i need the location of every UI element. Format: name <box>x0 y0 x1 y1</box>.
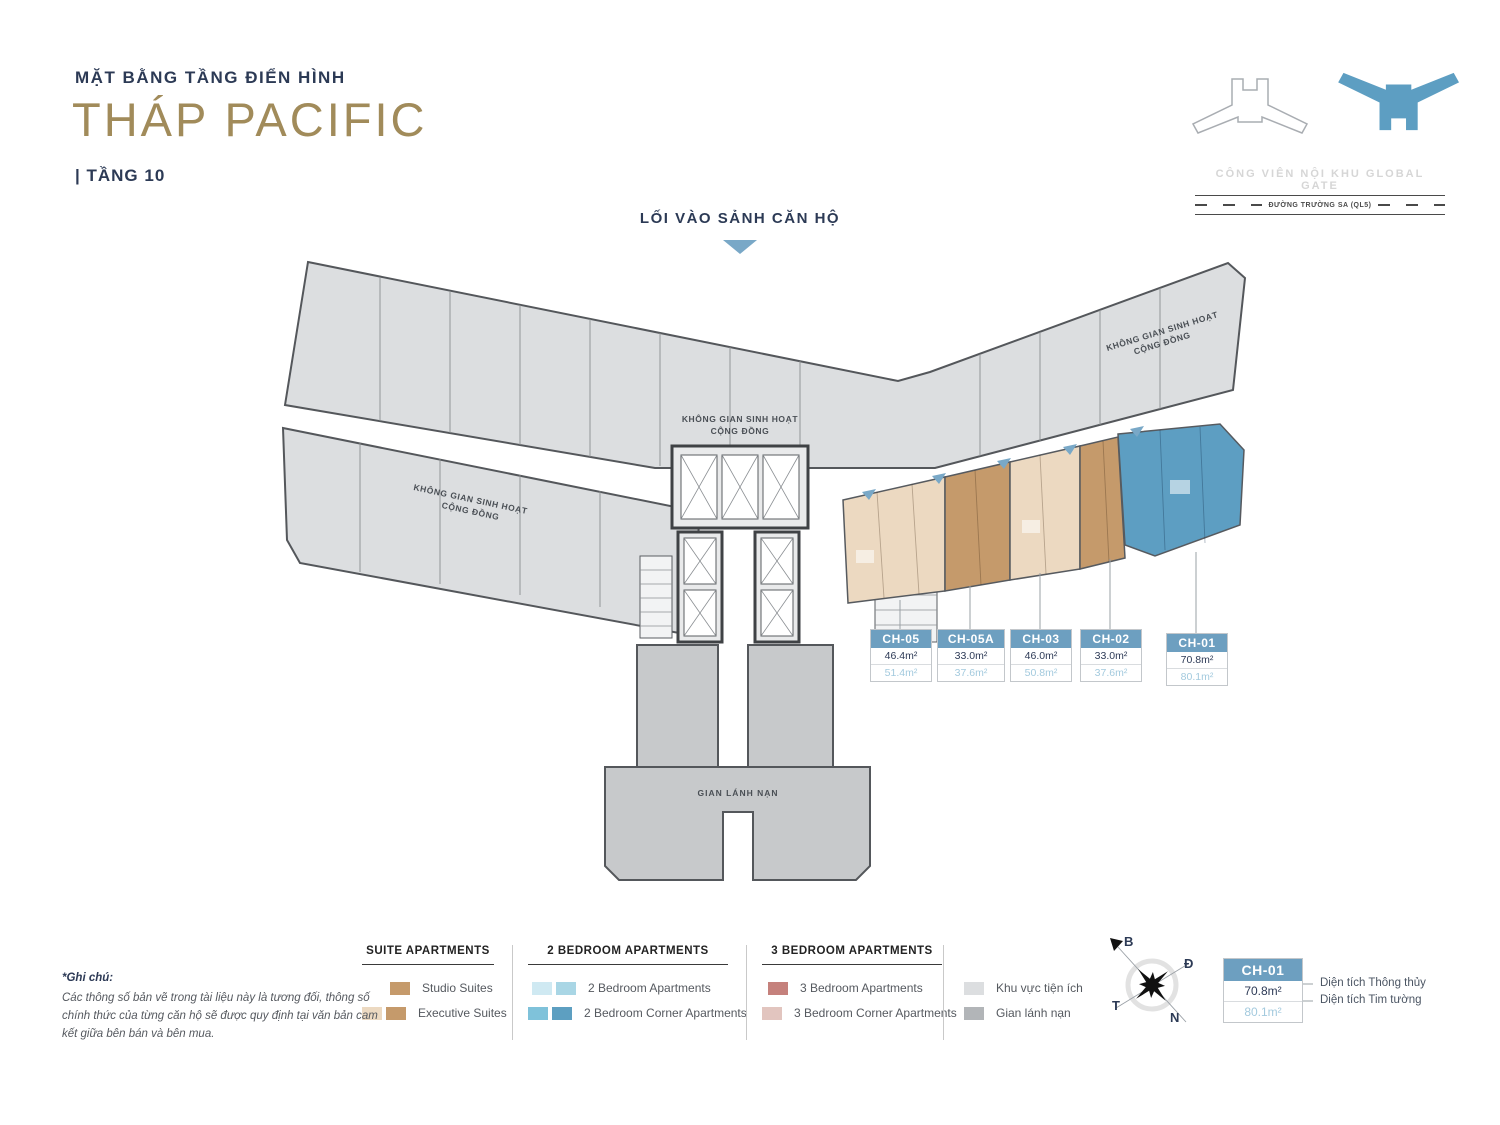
legend-swatch <box>556 982 576 995</box>
legend-divider <box>512 945 513 1040</box>
unit-ch-02-shape <box>1080 437 1125 569</box>
legend-3br-apartments: 3 BEDROOM APARTMENTS 3 Bedroom Apartment… <box>762 945 942 1029</box>
legend-swatch <box>528 1007 548 1020</box>
legend-item-label: 2 Bedroom Corner Apartments <box>584 1006 747 1020</box>
legend-swatch <box>552 1007 572 1020</box>
unit-tag-ch-05a: CH-05A 33.0m² 37.6m² <box>937 629 1005 682</box>
footnote: *Ghi chú: Các thông số bản vẽ trong tài … <box>62 972 382 1043</box>
legend-group-title: SUITE APARTMENTS <box>362 945 494 965</box>
footnote-body: Các thông số bản vẽ trong tài liệu này l… <box>62 990 382 1043</box>
legend-item: 2 Bedroom Corner Apartments <box>528 1004 728 1022</box>
unit-tag-ch-01: CH-01 70.8m² 80.1m² <box>1166 633 1228 686</box>
community-label-center-2: CỘNG ĐỒNG <box>711 425 770 436</box>
legend-group-title: 2 BEDROOM APARTMENTS <box>528 945 728 965</box>
unit-gross-area: 80.1m² <box>1224 1002 1302 1022</box>
legend-item-label: Studio Suites <box>422 981 493 995</box>
unit-id: CH-05 <box>871 630 931 648</box>
unit-id: CH-02 <box>1081 630 1141 648</box>
legend-item: Khu vực tiện ích <box>958 979 1098 997</box>
legend-swatch <box>532 982 552 995</box>
compass-south-label: N <box>1170 1010 1179 1025</box>
compass-east-label: Đ <box>1184 956 1193 971</box>
road-strip: ĐƯỜNG TRƯỜNG SA (QL5) <box>1195 195 1445 215</box>
page-title: THÁP PACIFIC <box>72 92 427 147</box>
unit-tag-ch-03: CH-03 46.0m² 50.8m² <box>1010 629 1072 682</box>
compass-north-label: B <box>1124 934 1133 949</box>
unit-gross-area: 37.6m² <box>1081 665 1141 681</box>
community-label-center-1: KHÔNG GIAN SINH HOẠT <box>682 413 799 424</box>
unit-gross-area: 51.4m² <box>871 665 931 681</box>
unit-ch-05-shape <box>843 477 945 603</box>
legend-item-label: Khu vực tiện ích <box>996 981 1083 995</box>
upper-wings-shape <box>285 262 1245 468</box>
site-locator <box>1185 50 1465 170</box>
park-label: CÔNG VIÊN NỘI KHU GLOBAL GATE <box>1195 168 1445 192</box>
legend-divider <box>943 945 944 1040</box>
legend-divider <box>746 945 747 1040</box>
unit-id: CH-01 <box>1167 634 1227 652</box>
unit-net-area: 46.4m² <box>871 648 931 665</box>
legend-item-label: 2 Bedroom Apartments <box>588 981 711 995</box>
unit-net-area: 33.0m² <box>938 648 1004 665</box>
net-area-definition: Diện tích Thông thủy <box>1320 977 1426 989</box>
unit-tag-ch-02: CH-02 33.0m² 37.6m² <box>1080 629 1142 682</box>
legend-group-title: 3 BEDROOM APARTMENTS <box>762 945 942 965</box>
unit-id: CH-05A <box>938 630 1004 648</box>
gross-area-definition: Diện tích Tim tường <box>1320 994 1422 1006</box>
road-centerline <box>1195 204 1262 206</box>
unit-net-area: 70.8m² <box>1224 981 1302 1002</box>
unit-id: CH-03 <box>1011 630 1071 648</box>
road-centerline <box>1378 204 1445 206</box>
unit-id: CH-01 <box>1224 959 1302 981</box>
legend-item: 3 Bedroom Apartments <box>762 979 942 997</box>
page-subtitle: MẶT BẰNG TẦNG ĐIỂN HÌNH <box>75 68 346 88</box>
legend-swatch <box>390 982 410 995</box>
legend-item-label: 3 Bedroom Corner Apartments <box>794 1006 957 1020</box>
legend-item: 2 Bedroom Apartments <box>528 979 728 997</box>
refuge-block-shape <box>605 767 870 880</box>
legend-swatch <box>386 1007 406 1020</box>
tower-outline-icon <box>1193 79 1307 133</box>
legend-extras: Khu vực tiện ích Gian lánh nạn <box>958 945 1098 1029</box>
sample-unit-tag: CH-01 70.8m² 80.1m² <box>1223 958 1303 1023</box>
legend-item: Gian lánh nạn <box>958 1004 1098 1022</box>
elevator-cores <box>678 532 799 642</box>
compass-west-label: T <box>1112 998 1120 1013</box>
brochure-page: { "header": { "subtitle": "MẶT BẰNG TẦNG… <box>0 0 1500 1125</box>
legend-2br-apartments: 2 BEDROOM APARTMENTS 2 Bedroom Apartment… <box>528 945 728 1029</box>
legend-swatch <box>964 982 984 995</box>
unit-tag-ch-05: CH-05 46.4m² 51.4m² <box>870 629 932 682</box>
legend-item-label: 3 Bedroom Apartments <box>800 981 923 995</box>
unit-net-area: 70.8m² <box>1167 652 1227 669</box>
legend-swatch <box>768 982 788 995</box>
unit-gross-area: 50.8m² <box>1011 665 1071 681</box>
stem-right-shape <box>748 645 833 767</box>
footnote-title: *Ghi chú: <box>62 972 382 984</box>
unit-net-area: 33.0m² <box>1081 648 1141 665</box>
tower-pacific-icon <box>1338 73 1459 130</box>
unit-gross-area: 37.6m² <box>938 665 1004 681</box>
refuge-label: GIAN LÁNH NẠN <box>698 788 779 798</box>
legend-swatch <box>762 1007 782 1020</box>
road-name: ĐƯỜNG TRƯỜNG SA (QL5) <box>1268 202 1371 209</box>
legend-item: 3 Bedroom Corner Apartments <box>762 1004 942 1022</box>
stem-left-shape <box>637 645 718 767</box>
legend-swatch <box>964 1007 984 1020</box>
legend-item-label: Gian lánh nạn <box>996 1006 1071 1020</box>
legend-item-label: Executive Suites <box>418 1006 507 1020</box>
unit-gross-area: 80.1m² <box>1167 669 1227 685</box>
road-edge-bottom <box>1195 214 1445 215</box>
compass-north-arrow <box>1110 938 1123 951</box>
elevator-bank <box>672 446 808 528</box>
floor-label: | TẦNG 10 <box>75 166 165 186</box>
entrance-label: LỐI VÀO SẢNH CĂN HỘ <box>590 210 890 227</box>
unit-net-area: 46.0m² <box>1011 648 1071 665</box>
